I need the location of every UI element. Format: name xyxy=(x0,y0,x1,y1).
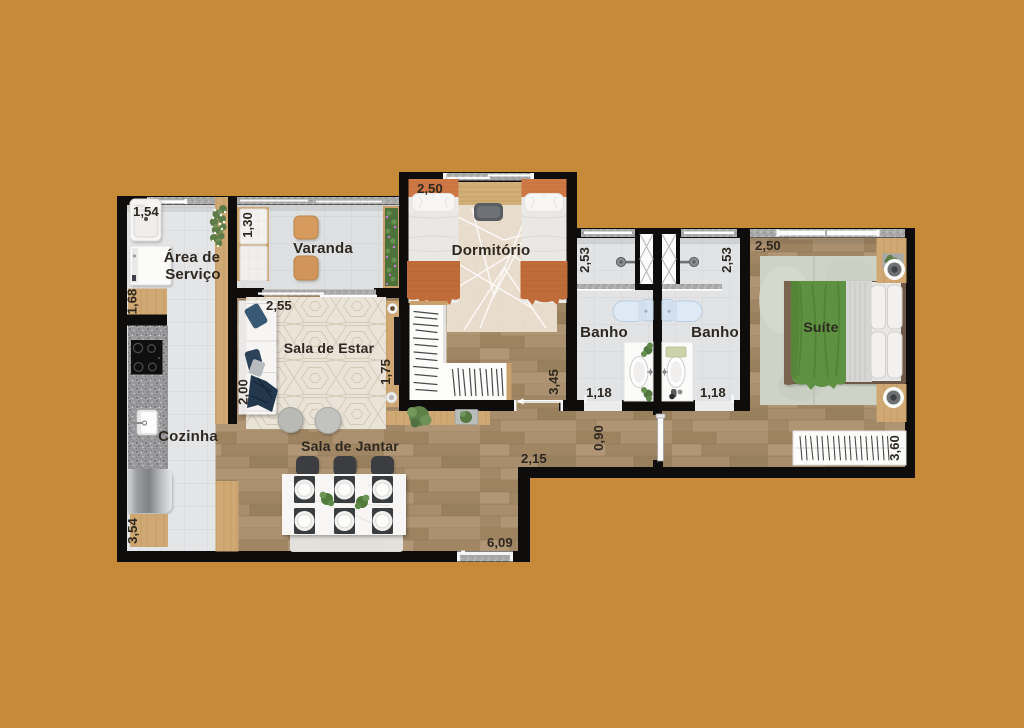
svg-text:Sala de Estar: Sala de Estar xyxy=(284,340,375,356)
svg-text:Serviço: Serviço xyxy=(165,266,221,283)
svg-text:1,75: 1,75 xyxy=(378,359,393,385)
svg-text:Varanda: Varanda xyxy=(293,240,353,257)
svg-text:Sala de Jantar: Sala de Jantar xyxy=(301,438,399,454)
svg-text:2,53: 2,53 xyxy=(577,247,592,273)
svg-text:2,00: 2,00 xyxy=(236,379,251,405)
svg-text:1,68: 1,68 xyxy=(125,289,140,315)
svg-text:1,18: 1,18 xyxy=(586,385,612,400)
svg-text:Suíte: Suíte xyxy=(803,319,838,335)
svg-text:3,60: 3,60 xyxy=(887,435,902,461)
svg-text:Dormitório: Dormitório xyxy=(452,242,531,259)
svg-text:2,15: 2,15 xyxy=(521,451,547,466)
svg-text:2,50: 2,50 xyxy=(755,238,781,253)
svg-text:2,53: 2,53 xyxy=(719,247,734,273)
svg-text:6,09: 6,09 xyxy=(487,535,513,550)
svg-text:1,54: 1,54 xyxy=(133,204,159,219)
svg-text:1,30: 1,30 xyxy=(240,212,255,238)
svg-text:Cozinha: Cozinha xyxy=(158,428,218,445)
svg-text:Banho: Banho xyxy=(580,324,628,341)
svg-text:2,55: 2,55 xyxy=(266,298,292,313)
svg-text:2,50: 2,50 xyxy=(417,181,443,196)
svg-text:3,45: 3,45 xyxy=(546,369,561,395)
svg-text:3,54: 3,54 xyxy=(125,518,140,544)
svg-text:Banho: Banho xyxy=(691,324,739,341)
svg-text:Área de: Área de xyxy=(164,249,220,266)
svg-text:0,90: 0,90 xyxy=(591,425,606,451)
svg-text:1,18: 1,18 xyxy=(700,385,726,400)
